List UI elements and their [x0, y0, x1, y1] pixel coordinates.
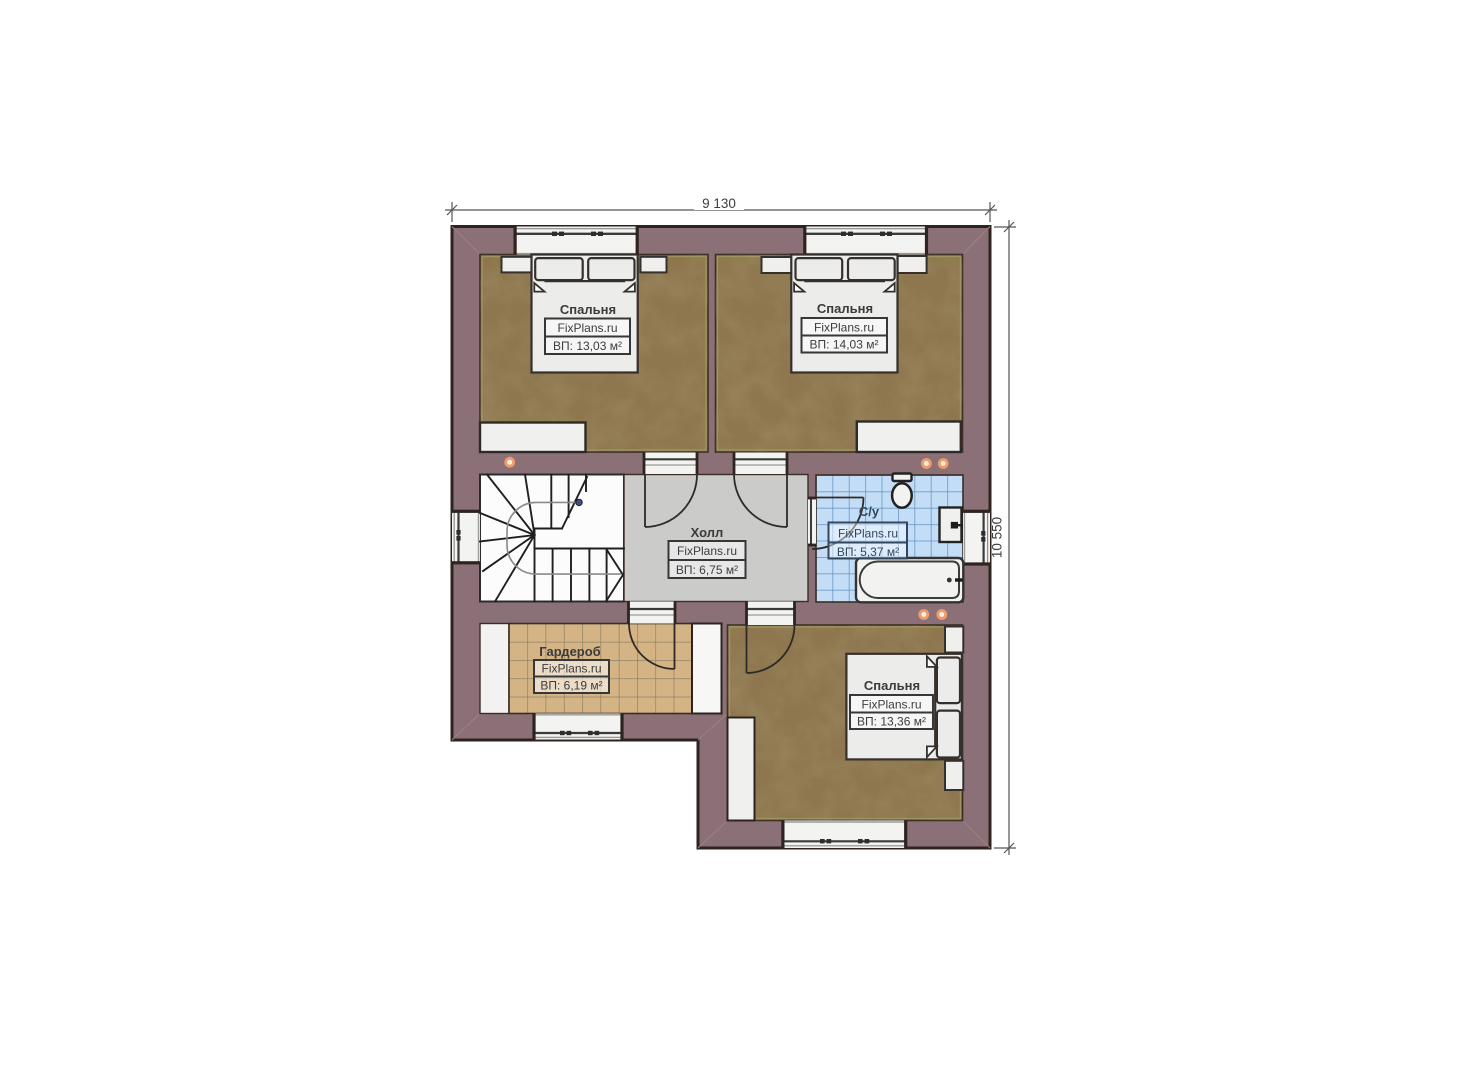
- svg-text:С/у: С/у: [859, 504, 880, 519]
- svg-text:FixPlans.ru: FixPlans.ru: [541, 662, 601, 676]
- svg-text:9 130: 9 130: [702, 196, 736, 211]
- svg-text:ВП: 6,75 м²: ВП: 6,75 м²: [676, 563, 738, 577]
- svg-text:Холл: Холл: [691, 525, 724, 540]
- svg-text:ВП: 13,36 м²: ВП: 13,36 м²: [857, 715, 926, 729]
- svg-text:ВП: 13,03 м²: ВП: 13,03 м²: [553, 339, 622, 353]
- svg-text:ВП: 6,19 м²: ВП: 6,19 м²: [540, 679, 602, 693]
- svg-text:10 550: 10 550: [990, 517, 1005, 558]
- svg-text:ВП: 14,03 м²: ВП: 14,03 м²: [810, 338, 879, 352]
- svg-text:FixPlans.ru: FixPlans.ru: [838, 527, 898, 541]
- svg-text:ВП: 5,37 м²: ВП: 5,37 м²: [837, 545, 899, 559]
- svg-text:FixPlans.ru: FixPlans.ru: [557, 321, 617, 335]
- svg-text:FixPlans.ru: FixPlans.ru: [861, 698, 921, 712]
- svg-text:FixPlans.ru: FixPlans.ru: [677, 544, 737, 558]
- svg-text:Гардероб: Гардероб: [539, 644, 600, 659]
- svg-text:Спальня: Спальня: [817, 301, 873, 316]
- svg-text:Спальня: Спальня: [560, 302, 616, 317]
- svg-text:Спальня: Спальня: [864, 678, 920, 693]
- svg-text:FixPlans.ru: FixPlans.ru: [814, 321, 874, 335]
